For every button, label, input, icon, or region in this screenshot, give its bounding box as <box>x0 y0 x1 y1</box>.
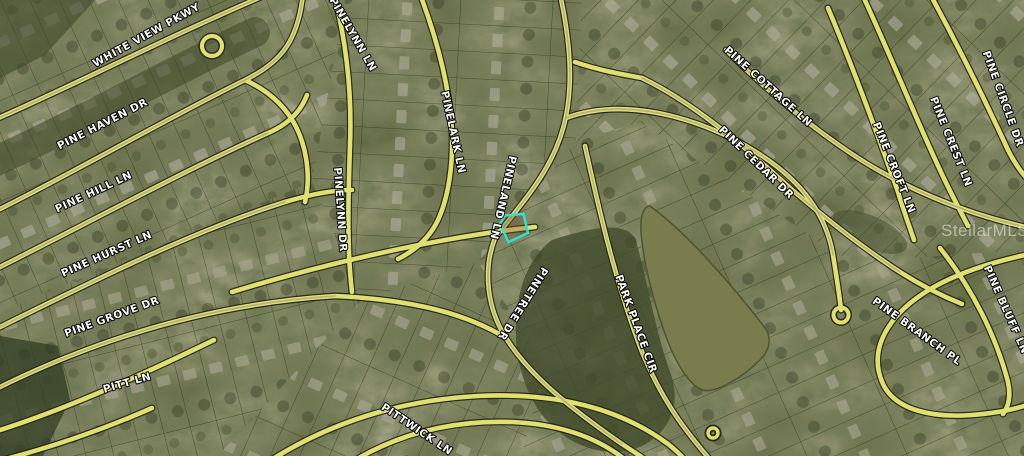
stellar-mls-watermark: StellarMLS <box>941 221 1024 240</box>
map-svg: WHITE VIEW PKWYPINE HAVEN DRPINE HILL LN… <box>0 0 1024 456</box>
aerial-map[interactable]: WHITE VIEW PKWYPINE HAVEN DRPINE HILL LN… <box>0 0 1024 456</box>
